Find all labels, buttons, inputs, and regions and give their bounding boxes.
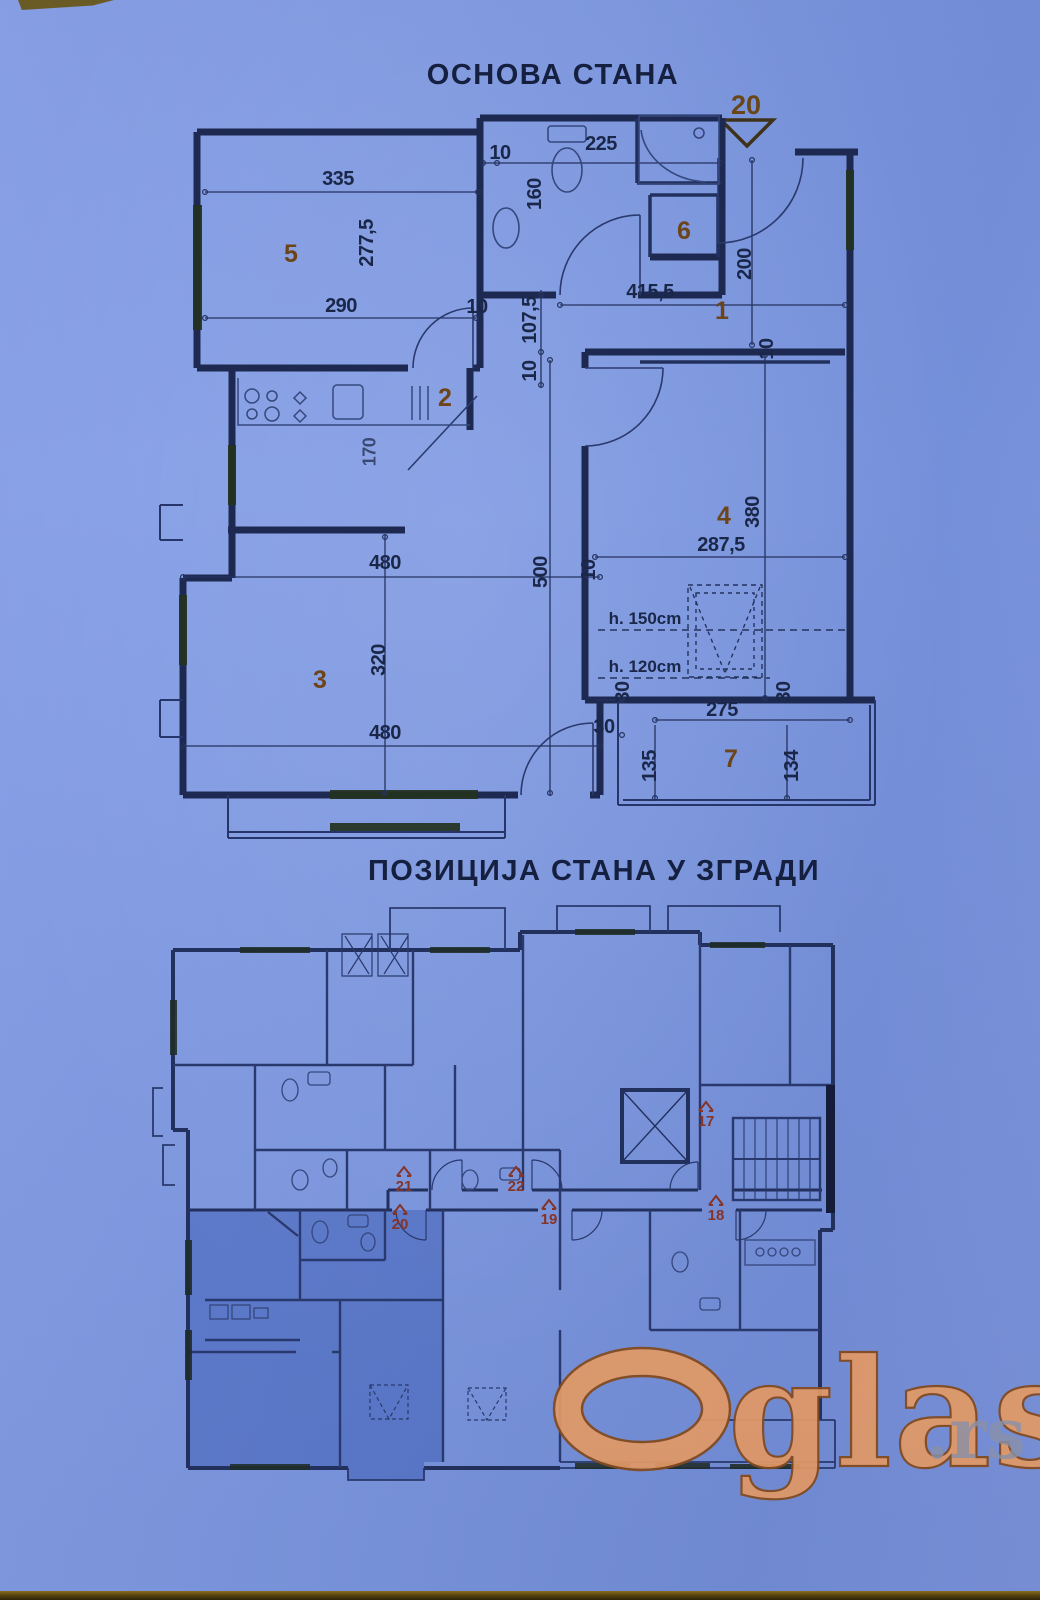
dim-200: 200 xyxy=(734,248,756,280)
lower-plan-title: ПОЗИЦИЈА СТАНА У ЗГРАДИ xyxy=(368,855,820,887)
floorplan-drawing: ОСНОВА СТАНА 20 xyxy=(0,0,1040,1600)
height-120: h. 120cm xyxy=(609,657,682,676)
dim-10c: 10 xyxy=(519,360,541,382)
room-6: 6 xyxy=(677,217,691,245)
elevator xyxy=(622,1090,688,1162)
room-1: 1 xyxy=(715,297,729,325)
dim-320: 320 xyxy=(368,644,390,676)
stairs xyxy=(733,1118,820,1200)
apartment-marker-triangle-icon xyxy=(721,120,773,146)
upper-plan-title: ОСНОВА СТАНА xyxy=(427,59,679,91)
apartment-21: 21 xyxy=(396,1178,413,1195)
stairwell-exterior-wall xyxy=(826,1085,835,1213)
dim-500: 500 xyxy=(530,556,552,588)
dim-30b: 30 xyxy=(773,681,795,703)
dim-160: 160 xyxy=(524,178,546,210)
lower-doors xyxy=(396,1160,766,1240)
entrance-marker-icons xyxy=(393,1102,723,1214)
apartment-marker-number: 20 xyxy=(731,90,761,120)
dim-107-5: 107,5 xyxy=(519,296,541,344)
watermark-o-inner-edge xyxy=(582,1376,702,1442)
dim-30a: 30 xyxy=(612,681,634,703)
room-3: 3 xyxy=(313,666,327,694)
room-5: 5 xyxy=(284,240,298,268)
dim-30c: 30 xyxy=(593,716,615,738)
upper-balcony-parapet xyxy=(160,505,875,838)
watermark: glasi .rs xyxy=(554,1326,1040,1502)
photo-bottom-edge xyxy=(0,1591,1040,1600)
dim-135: 135 xyxy=(639,750,661,782)
dim-10b: 10 xyxy=(466,296,488,318)
dim-275: 275 xyxy=(706,699,738,721)
height-150: h. 150cm xyxy=(609,609,682,628)
room-2: 2 xyxy=(438,384,452,412)
apartment-19: 19 xyxy=(541,1211,558,1228)
dim-225: 225 xyxy=(585,133,617,155)
floorplan-photo: ОСНОВА СТАНА 20 xyxy=(0,0,1040,1600)
dim-480a: 480 xyxy=(369,552,401,574)
dim-10a: 10 xyxy=(489,142,511,164)
dim-134: 134 xyxy=(781,749,803,782)
upper-walls xyxy=(183,118,875,795)
corridor-walls xyxy=(188,1190,822,1210)
dim-170: 170 xyxy=(359,437,379,466)
dim-415-5: 415,5 xyxy=(626,281,674,303)
room-4: 4 xyxy=(717,502,731,530)
dim-380: 380 xyxy=(742,496,764,528)
apartment-17: 17 xyxy=(698,1113,715,1130)
dim-10e: 10 xyxy=(756,338,778,360)
dim-277-5: 277,5 xyxy=(356,219,378,267)
dim-480b: 480 xyxy=(369,722,401,744)
dim-287-5: 287,5 xyxy=(697,534,745,556)
apartment-20: 20 xyxy=(392,1216,409,1233)
highlighted-apartment xyxy=(190,1210,443,1480)
dim-290: 290 xyxy=(325,295,357,317)
apartment-22: 22 xyxy=(508,1178,525,1195)
dim-335: 335 xyxy=(322,168,354,190)
kitchen-fixtures xyxy=(238,378,470,425)
watermark-tld: .rs xyxy=(925,1392,1026,1475)
apartment-18: 18 xyxy=(708,1207,725,1224)
dim-10d: 10 xyxy=(578,559,600,581)
upper-plan: ОСНОВА СТАНА 20 xyxy=(160,59,875,838)
room-7: 7 xyxy=(724,745,738,773)
